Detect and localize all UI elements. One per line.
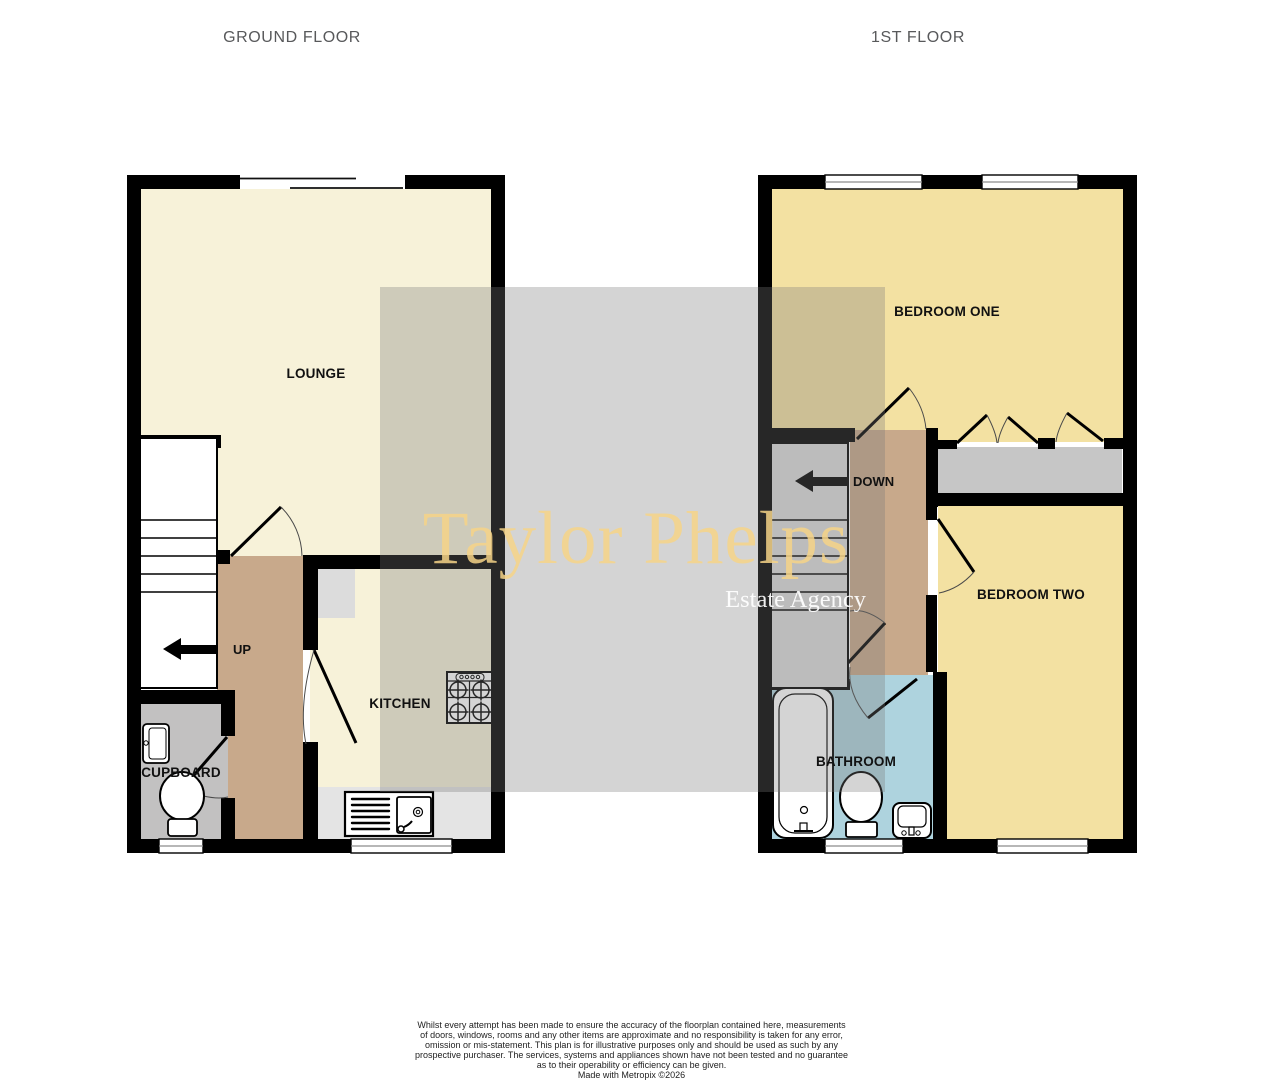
window-bedroom-two: [997, 839, 1088, 853]
cupboard-label: CUPBOARD: [141, 765, 221, 780]
disclaimer-line: prospective purchaser. The services, sys…: [0, 1050, 1263, 1060]
bedroom-two-room: [938, 505, 1124, 840]
kitchen-sink: [345, 792, 433, 836]
cupboard-sink: [143, 724, 169, 763]
sliding-door: [240, 175, 405, 189]
watermark-tagline: Estate Agency: [725, 586, 867, 613]
window-kitchen: [351, 839, 452, 853]
window-bedroom-one-left: [825, 175, 922, 189]
disclaimer: Whilst every attempt has been made to en…: [0, 1020, 1263, 1080]
window-cupboard: [159, 839, 203, 853]
window-bathroom: [825, 839, 903, 853]
watermark: Taylor Phelps Estate Agency: [380, 287, 885, 792]
bathroom-label: BATHROOM: [816, 754, 896, 769]
kitchen-label: KITCHEN: [369, 696, 430, 711]
wardrobe: [937, 447, 1122, 493]
disclaimer-line: as to their operability or efficiency ca…: [0, 1060, 1263, 1070]
disclaimer-line: of doors, windows, rooms and any other i…: [0, 1030, 1263, 1040]
window-bedroom-one-right: [982, 175, 1078, 189]
disclaimer-line: omission or mis-statement. This plan is …: [0, 1040, 1263, 1050]
bathroom-sink: [893, 803, 931, 838]
down-label: DOWN: [853, 474, 894, 489]
floorplan-graphic: Taylor Phelps Estate Agency LOUNGE KITCH…: [0, 0, 1263, 1080]
watermark-brand: Taylor Phelps: [423, 497, 849, 580]
disclaimer-line: Whilst every attempt has been made to en…: [0, 1020, 1263, 1030]
bedroom-one-label: BEDROOM ONE: [894, 304, 1000, 319]
disclaimer-credit: Made with Metropix ©2026: [0, 1070, 1263, 1080]
lounge-label: LOUNGE: [287, 366, 346, 381]
kitchen-unit-block: [318, 568, 355, 618]
up-label: UP: [233, 642, 251, 657]
floorplan-page: GROUND FLOOR 1ST FLOOR: [0, 0, 1263, 1080]
bedroom-two-label: BEDROOM TWO: [977, 587, 1085, 602]
